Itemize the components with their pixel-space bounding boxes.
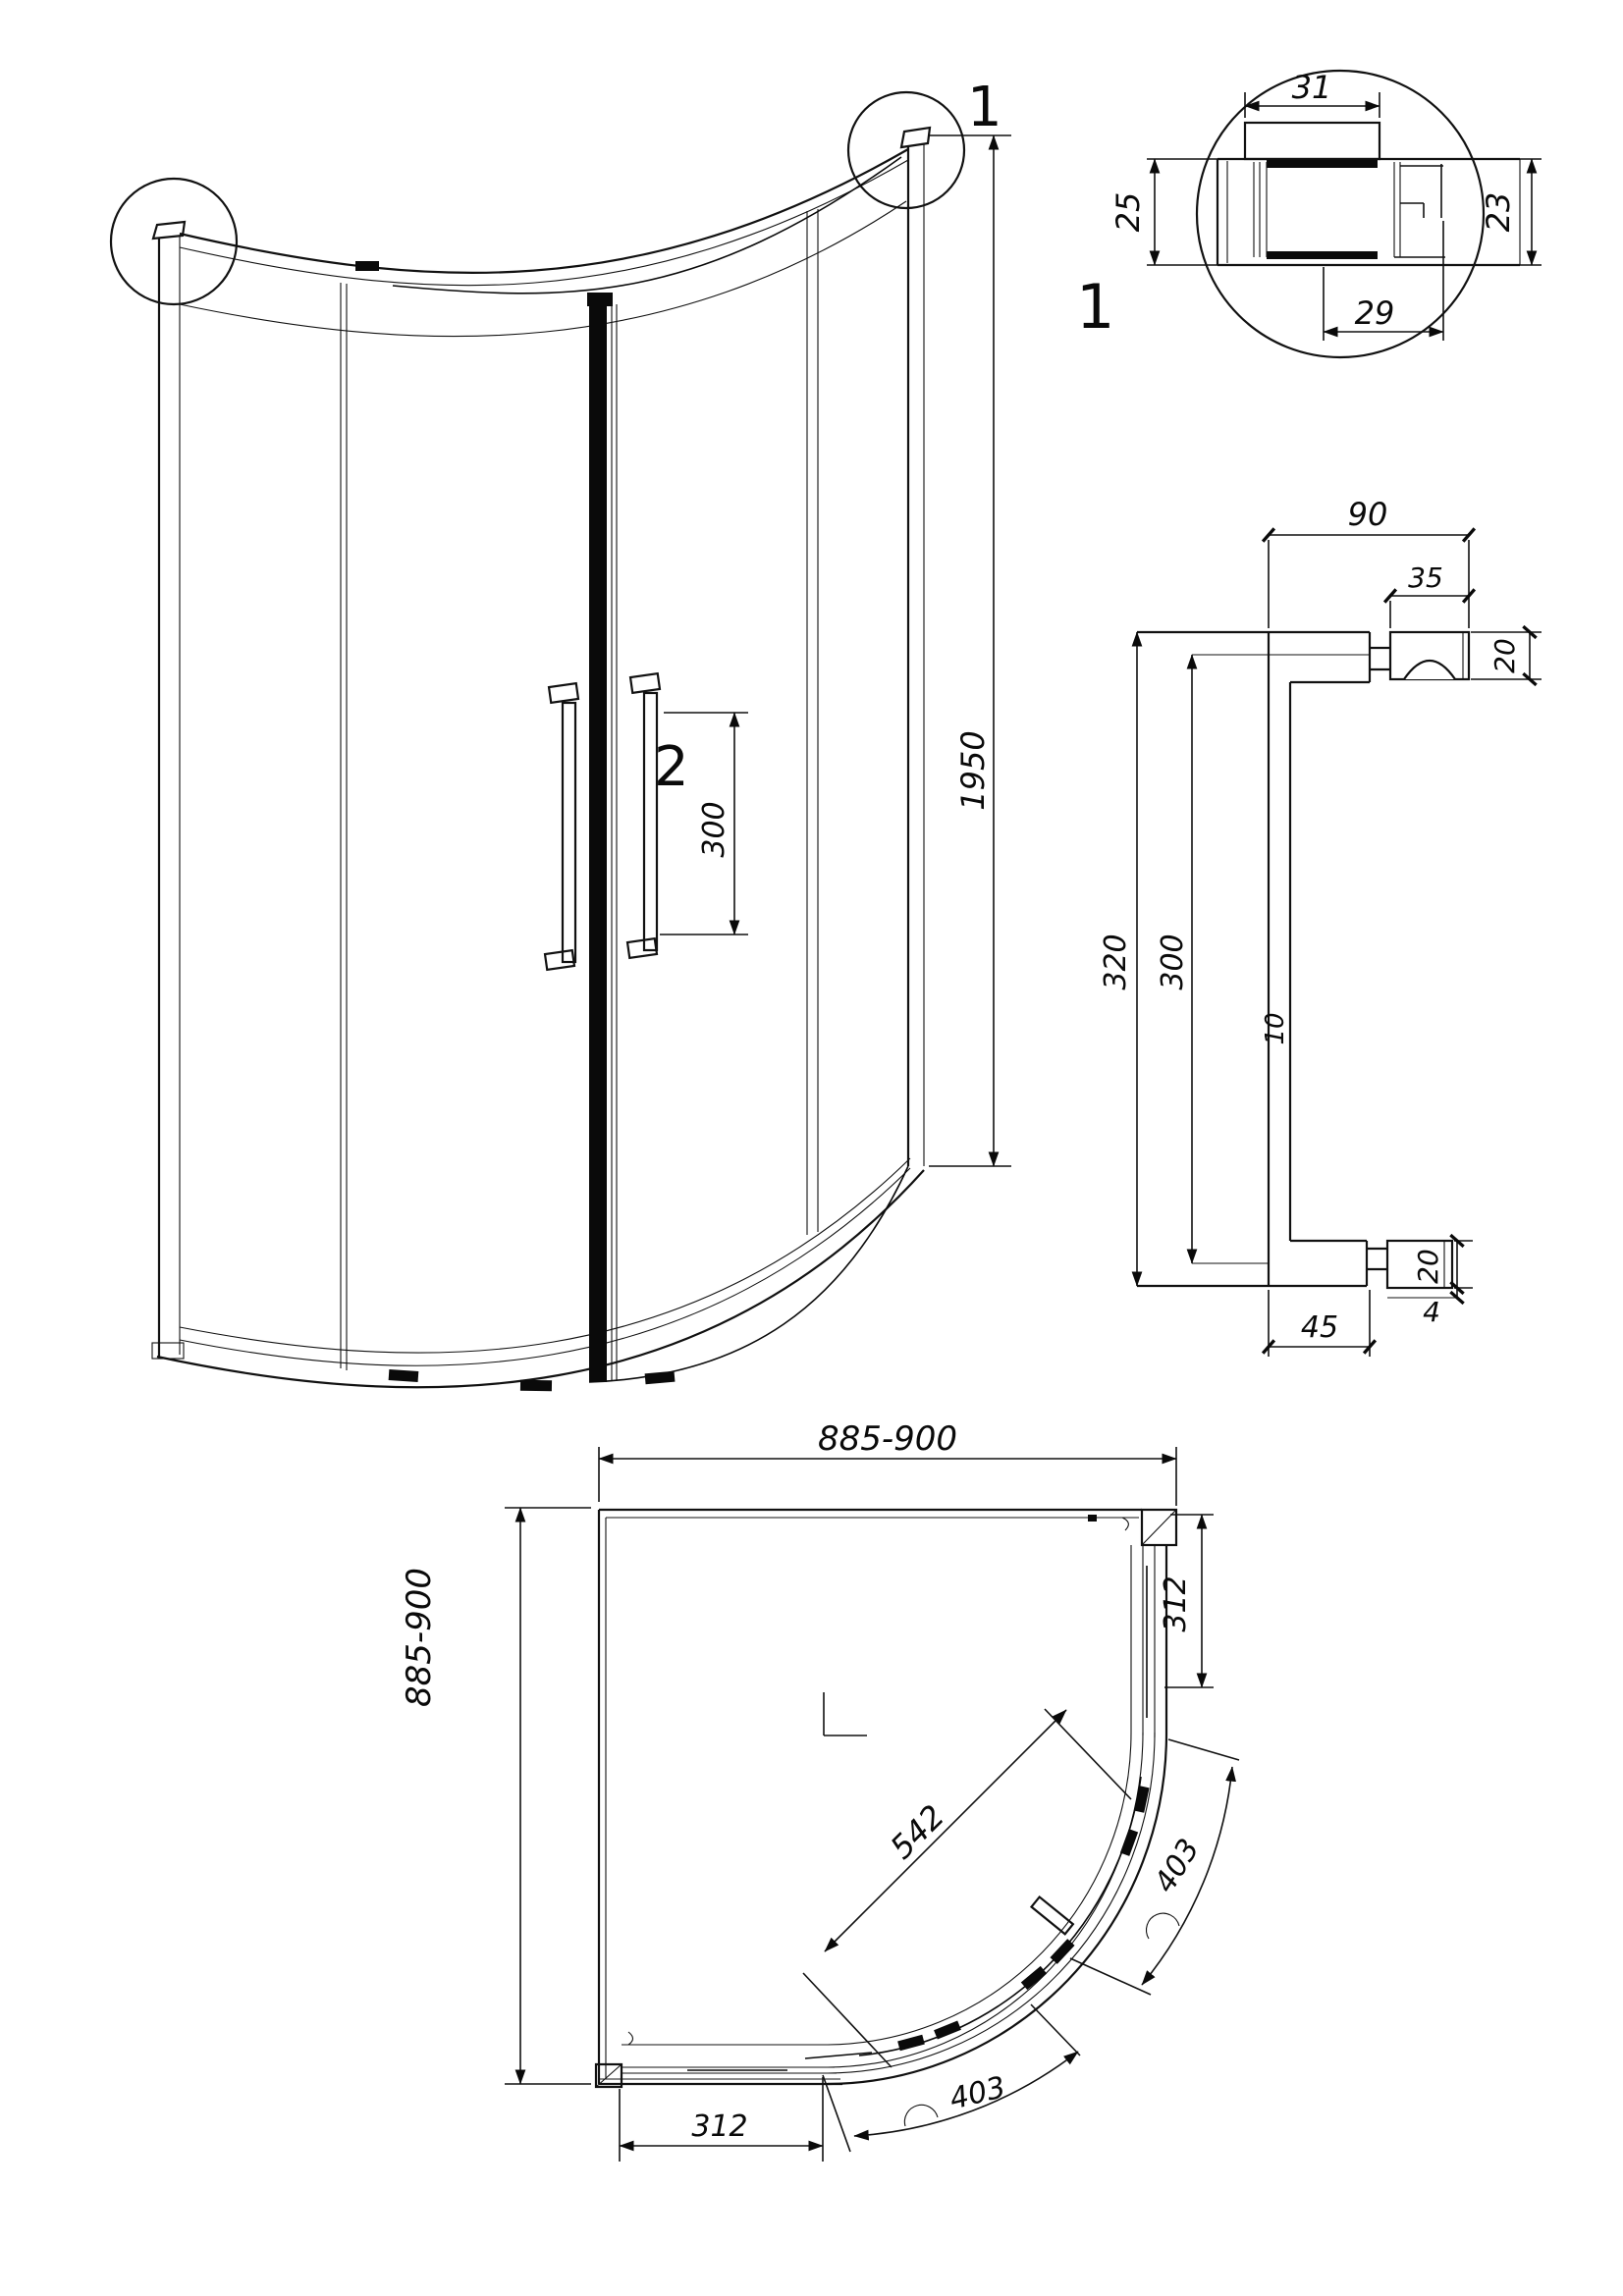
svg-text:20: 20 [1412,1249,1444,1284]
front-view: 1 2 300 1950 [111,76,1011,1391]
profile-detail-view: 31 25 23 29 1 [1076,69,1542,357]
bottom-rail [157,1158,924,1391]
dim-45: 45 [1269,1290,1370,1357]
dim-23: 23 [1480,159,1542,265]
svg-text:29: 29 [1355,294,1395,332]
plan-right-straight-section [1131,1545,1166,1737]
rail-section [1217,123,1520,265]
glass-panels [341,209,818,1382]
svg-text:10: 10 [1261,1012,1290,1044]
dim-20-bottom: 20 [1412,1241,1473,1288]
svg-text:31: 31 [1292,69,1332,106]
right-wall-profile [901,128,930,1166]
svg-text:300: 300 [1156,934,1190,989]
technical-drawing-page: 1 2 300 1950 [0,0,1623,2296]
svg-text:45: 45 [1301,1310,1338,1345]
dim-320: 320 [1099,632,1137,1286]
dim-20-top: 20 [1471,632,1542,679]
svg-text:90: 90 [1348,496,1388,533]
svg-text:4: 4 [1423,1296,1440,1328]
handle-right-cap-top [630,673,660,693]
detail-callout-label: 1 [1076,271,1114,343]
dim-plan-403-right: 403 [1070,1739,1239,1995]
dim-300: 300 [1156,655,1192,1263]
svg-text:403: 403 [1148,1833,1207,1898]
dim-29: 29 [1324,221,1443,341]
callout-2-label: 2 [654,735,689,799]
svg-text:885-900: 885-900 [400,1568,439,1707]
handle-left-cap-bottom [545,950,574,970]
left-wall-profile [152,222,185,1359]
svg-text:542: 542 [883,1797,951,1866]
svg-text:20: 20 [1488,638,1521,673]
dim-plan-312-bottom: 312 [620,2077,823,2162]
top-rail [180,149,908,337]
svg-text:1950: 1950 [954,730,992,810]
dim-35: 35 [1390,561,1469,628]
plan-walls [596,1510,1176,2087]
svg-text:320: 320 [1099,934,1133,989]
dim-plan-depth: 885-900 [400,1508,591,2084]
plan-quadrant-curve [828,1733,1166,2084]
svg-text:312: 312 [691,2109,747,2144]
shower-enclosure-drawing: 1 2 300 1950 [0,0,1623,2296]
handle-left-cap-top [549,683,578,703]
dim-4: 4 [1423,1288,1457,1328]
handle-detail-view: 90 35 20 320 300 10 45 [1099,496,1542,1357]
dim-plan-width: 885-900 [599,1419,1176,1506]
svg-text:403: 403 [947,2070,1009,2117]
callout-1-label: 1 [967,76,1002,139]
svg-text:885-900: 885-900 [818,1419,957,1459]
svg-text:23: 23 [1480,192,1517,233]
plan-center-mark [824,1692,867,1735]
plan-bottom-straight-section [599,2045,872,2084]
svg-text:25: 25 [1109,192,1147,233]
svg-text:300: 300 [697,801,731,857]
handle-left-bar [563,703,575,962]
dim-height-1950: 1950 [929,135,1011,1166]
plan-view: 885-900 885-900 312 312 542 [400,1419,1239,2162]
dim-31: 31 [1245,69,1380,118]
svg-text:35: 35 [1408,561,1443,594]
handle-right-bar [644,693,657,950]
dim-10: 10 [1261,1012,1290,1044]
dim-plan-542: 542 [803,1709,1131,2067]
svg-text:312: 312 [1159,1575,1193,1631]
handle-right-cap-bottom [627,938,657,958]
